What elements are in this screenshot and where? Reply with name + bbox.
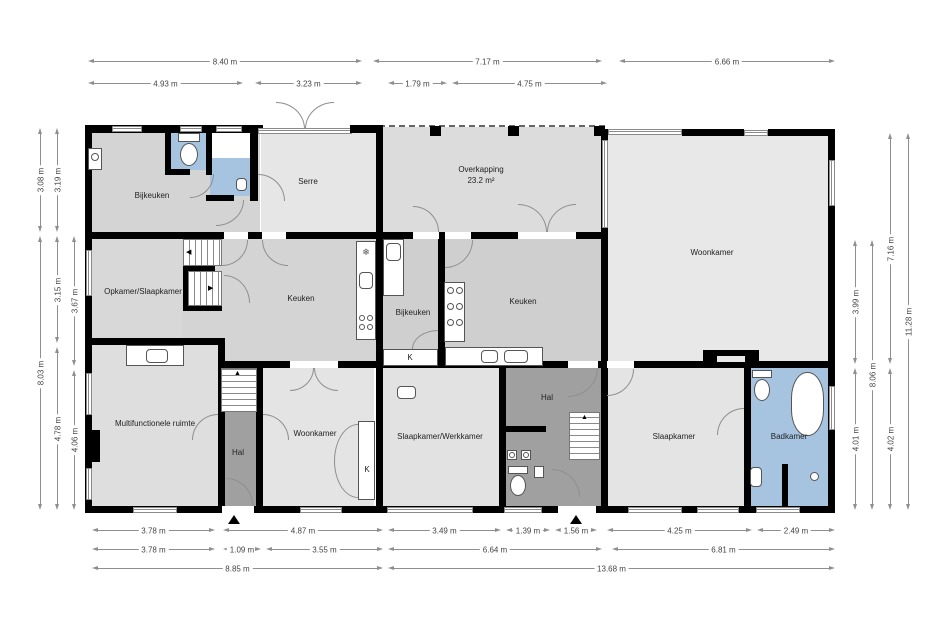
burner	[447, 319, 454, 326]
window	[697, 507, 739, 513]
label-keuken-left: Keuken	[287, 294, 314, 304]
door-gap-entrance-right	[558, 506, 596, 513]
wall-badkamer-stub	[782, 464, 788, 513]
chimney	[92, 430, 100, 462]
burner	[447, 303, 454, 310]
label-multifunctionele: Multifunctionele ruimte	[115, 419, 195, 429]
label-keuken-mid: Keuken	[509, 297, 536, 307]
label-serre: Serre	[298, 177, 318, 187]
label-slaapkamer: Slaapkamer	[653, 432, 696, 442]
door-serre-right	[305, 102, 334, 129]
fridge-icon: ❄	[362, 247, 370, 257]
burner	[456, 319, 463, 326]
toilet-tank	[178, 133, 200, 142]
label-hal-left: Hal	[232, 448, 244, 458]
wall-toilet-bottom	[165, 169, 190, 175]
room-shower-top-wet	[210, 158, 252, 196]
door-gap	[413, 232, 439, 239]
shower-fixture	[236, 178, 247, 191]
window	[744, 130, 768, 136]
dim-top: 6.66 m	[619, 57, 835, 66]
window-glass-doors	[602, 140, 608, 228]
label-kast-mid: K	[407, 353, 412, 363]
window	[829, 160, 835, 206]
wall-multi-right	[218, 338, 225, 513]
shower-head	[810, 472, 819, 481]
sink-keuken-mid-2	[504, 350, 528, 363]
sink-badkamer	[750, 467, 762, 487]
stairs-wall-left	[183, 266, 188, 311]
fireplace-notch	[717, 356, 745, 362]
door-serre-left	[276, 102, 305, 129]
burner	[447, 287, 454, 294]
dim-top: 4.93 m	[88, 79, 243, 88]
toilet-bowl	[510, 475, 526, 496]
appliance-door	[523, 452, 529, 458]
dim-left: 3.15 m	[53, 236, 62, 343]
burner	[359, 324, 365, 330]
label-hal-right: Hal	[541, 393, 553, 403]
door-gap-entrance-left	[222, 506, 254, 513]
window	[300, 507, 342, 513]
burner	[456, 303, 463, 310]
toilet-tank	[752, 370, 772, 378]
door-gap	[224, 232, 248, 239]
dim-bottom: 8.85 m	[92, 564, 383, 573]
wall-shower-right	[250, 125, 258, 201]
dim-top: 3.23 m	[255, 79, 362, 88]
kast-woonkamer-bottom	[358, 421, 375, 500]
dim-right: 7.16 m	[886, 133, 895, 364]
window	[756, 507, 800, 513]
wall-hal2-closet-top	[501, 426, 546, 432]
dim-left: 8.03 m	[36, 236, 45, 510]
dim-bottom: 3.78 m	[92, 526, 215, 535]
wall-top-right-a	[682, 129, 744, 136]
stairs-main-lower	[188, 271, 222, 306]
burner	[359, 315, 365, 321]
wall-slaapwerk-hal	[499, 368, 506, 513]
wall-top-right-b	[768, 129, 835, 136]
dim-bottom: 1.56 m	[555, 526, 597, 535]
label-badkamer: Badkamer	[771, 432, 807, 442]
dim-right: 4.02 m	[886, 368, 895, 510]
dim-top: 1.79 m	[388, 79, 447, 88]
dim-bottom: 2.49 m	[757, 526, 835, 535]
label-slaapkamer-werkkamer: Slaapkamer/Werkkamer	[397, 432, 483, 442]
floorplan: ◀ ▶ ▲ ▲ ❄	[0, 0, 925, 617]
dim-bottom: 6.81 m	[612, 545, 835, 554]
dim-bottom: 4.87 m	[223, 526, 383, 535]
label-overkapping: Overkapping	[458, 165, 503, 175]
door-gap	[518, 232, 576, 239]
entrance-marker-left	[228, 515, 240, 524]
label-bijkeuken-top: Bijkeuken	[135, 191, 170, 201]
label-bijkeuken-mid: Bijkeuken	[396, 308, 431, 318]
stairs-arrow: ▲	[234, 370, 241, 377]
door-gap	[607, 361, 634, 368]
stairs-arrow: ▲	[581, 414, 588, 421]
label-woonkamer-right: Woonkamer	[691, 248, 734, 258]
door-gap	[568, 361, 598, 368]
window	[180, 126, 202, 132]
dim-top: 7.17 m	[373, 57, 602, 66]
sink-keuken-mid	[481, 350, 498, 363]
overkapping-post	[508, 126, 519, 136]
window	[387, 507, 473, 513]
sink-keuken-left	[359, 272, 373, 289]
dim-left: 3.67 m	[70, 236, 79, 366]
window	[628, 507, 682, 513]
toilet-tank	[508, 466, 528, 474]
wall-hal-left-right	[256, 361, 263, 513]
dim-right: 4.01 m	[851, 368, 860, 510]
dim-bottom: 3.78 m	[92, 545, 215, 554]
dim-bottom: 3.55 m	[266, 545, 383, 554]
dim-left: 4.78 m	[53, 347, 62, 510]
dim-top: 4.75 m	[452, 79, 607, 88]
door-gap	[262, 232, 286, 239]
door-gap	[290, 361, 338, 368]
dim-top: 8.40 m	[88, 57, 362, 66]
dim-left: 3.19 m	[53, 128, 62, 232]
room-serre	[261, 129, 378, 234]
window	[216, 126, 242, 132]
window	[608, 129, 682, 135]
wall-mid-a	[376, 125, 383, 513]
burner	[367, 324, 373, 330]
stairs-arrow: ▶	[208, 285, 213, 292]
wall-slaapkamer-badkamer	[744, 361, 751, 513]
corner-sink	[534, 466, 544, 478]
sink-basin	[91, 153, 99, 161]
wall-opkamer-bottom	[85, 338, 222, 345]
basin	[386, 243, 401, 261]
dim-right: 3.99 m	[851, 240, 860, 364]
dim-left: 3.08 m	[36, 128, 45, 232]
wall-left	[85, 125, 92, 513]
dim-bottom: 1.09 m	[223, 545, 261, 554]
label-kast-woonkamer: K	[364, 465, 369, 475]
dim-right: 8.06 m	[868, 240, 877, 510]
bathtub	[791, 372, 824, 436]
label-woonkamer-bottom: Woonkamer	[294, 429, 337, 439]
door-gap	[445, 232, 471, 239]
radiator-slaapwerk	[397, 386, 416, 399]
overkapping-open-edge	[379, 125, 605, 127]
appliance-door	[509, 452, 515, 458]
stairs-arrow: ◀	[186, 249, 191, 256]
overkapping-post	[430, 126, 441, 136]
dim-left: 4.06 m	[70, 370, 79, 510]
window	[112, 126, 142, 132]
dim-bottom: 6.64 m	[388, 545, 602, 554]
window	[86, 468, 92, 500]
dim-bottom: 13.68 m	[388, 564, 835, 573]
window	[504, 507, 542, 513]
wall-toilet-right	[206, 125, 212, 175]
dim-right: 11.28 m	[904, 133, 913, 510]
entrance-marker-right	[570, 515, 582, 524]
stairs-wall-bottom	[183, 306, 222, 311]
label-opkamer: Opkamer/Slaapkamer	[104, 287, 182, 297]
window	[829, 386, 835, 430]
toilet-bowl	[754, 379, 770, 401]
window	[133, 507, 177, 513]
basin	[146, 349, 168, 363]
toilet-bowl	[180, 143, 198, 166]
dim-bottom: 1.39 m	[506, 526, 550, 535]
burner	[456, 287, 463, 294]
wall-toilet-left	[165, 125, 171, 175]
dim-bottom: 3.49 m	[388, 526, 501, 535]
window	[86, 250, 92, 296]
window	[86, 373, 92, 415]
dim-bottom: 4.25 m	[607, 526, 752, 535]
burner	[367, 315, 373, 321]
label-overkapping-area: 23.2 m²	[467, 176, 494, 186]
